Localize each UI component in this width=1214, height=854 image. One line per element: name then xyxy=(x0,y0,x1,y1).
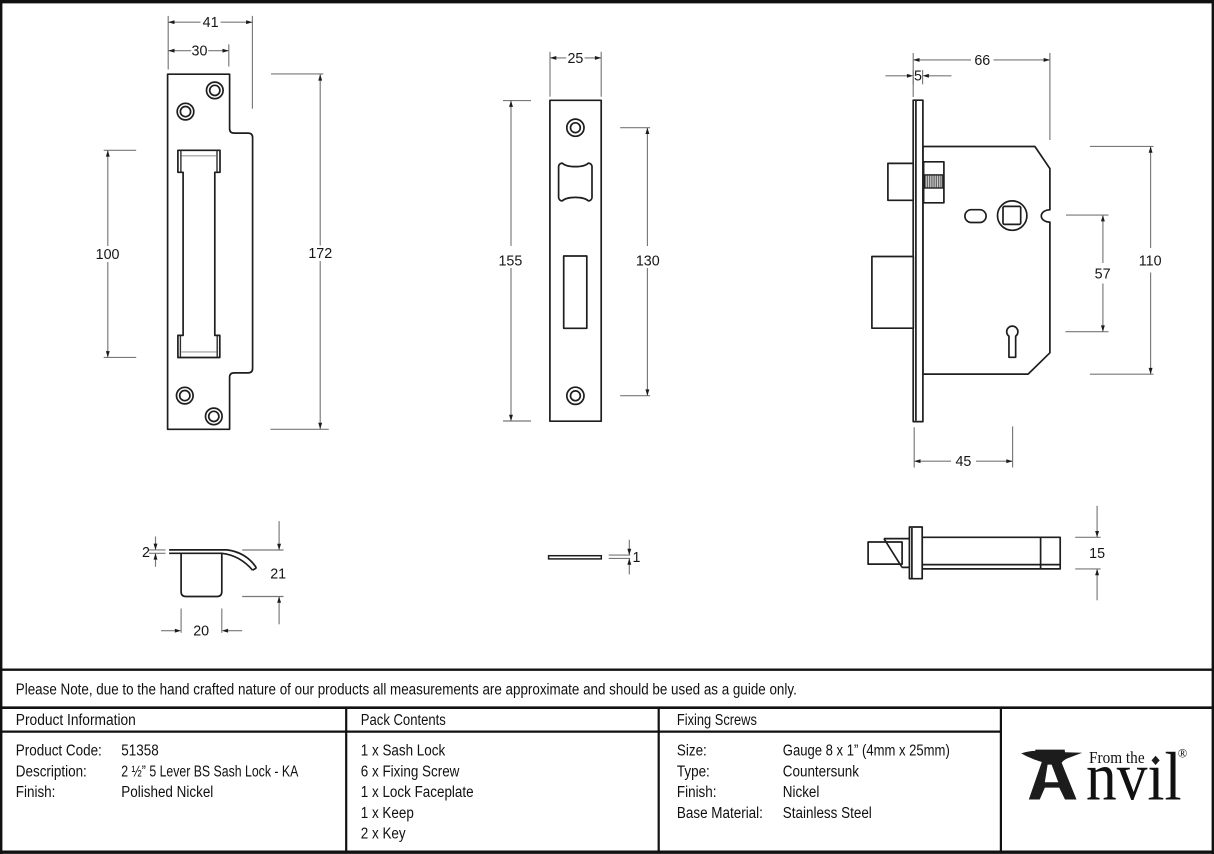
svg-text:2 x Key: 2 x Key xyxy=(361,826,406,843)
svg-text:45: 45 xyxy=(955,454,971,470)
svg-text:30: 30 xyxy=(192,44,208,60)
svg-text:Please Note, due to the hand c: Please Note, due to the hand crafted nat… xyxy=(16,682,797,699)
svg-text:Product Information: Product Information xyxy=(16,712,136,729)
svg-text:15: 15 xyxy=(1089,546,1105,562)
svg-text:Polished Nickel: Polished Nickel xyxy=(121,784,213,801)
svg-text:57: 57 xyxy=(1095,267,1111,283)
svg-text:Stainless Steel: Stainless Steel xyxy=(783,805,872,822)
svg-text:Description:: Description: xyxy=(16,763,87,780)
svg-text:1: 1 xyxy=(633,550,641,566)
svg-text:2: 2 xyxy=(142,545,150,561)
svg-text:1 x Keep: 1 x Keep xyxy=(361,805,414,822)
svg-text:2 ½” 5 Lever BS Sash Lock - KA: 2 ½” 5 Lever BS Sash Lock - KA xyxy=(121,763,299,780)
svg-text:®: ® xyxy=(1178,747,1188,761)
svg-text:66: 66 xyxy=(974,53,990,69)
svg-text:155: 155 xyxy=(498,254,522,270)
svg-text:6 x Fixing Screw: 6 x Fixing Screw xyxy=(361,763,460,780)
svg-text:130: 130 xyxy=(636,254,660,270)
svg-text:172: 172 xyxy=(308,246,332,262)
svg-text:100: 100 xyxy=(96,247,120,263)
svg-text:1 x Sash Lock: 1 x Sash Lock xyxy=(361,743,446,760)
svg-text:Size:: Size: xyxy=(677,743,707,760)
svg-text:Nickel: Nickel xyxy=(783,784,820,801)
svg-text:110: 110 xyxy=(1139,254,1162,270)
svg-text:Base Material:: Base Material: xyxy=(677,805,763,822)
svg-text:Gauge 8 x 1” (4mm x 25mm): Gauge 8 x 1” (4mm x 25mm) xyxy=(783,743,950,760)
svg-text:Product Code:: Product Code: xyxy=(16,743,102,760)
svg-text:Finish:: Finish: xyxy=(677,784,717,801)
svg-text:21: 21 xyxy=(270,566,286,582)
svg-text:51358: 51358 xyxy=(121,743,158,760)
svg-text:5: 5 xyxy=(914,69,922,85)
svg-text:Pack Contents: Pack Contents xyxy=(361,712,446,729)
svg-text:Countersunk: Countersunk xyxy=(783,763,859,780)
svg-text:20: 20 xyxy=(193,624,209,640)
svg-text:Finish:: Finish: xyxy=(16,784,56,801)
svg-text:41: 41 xyxy=(203,15,219,31)
svg-text:1 x Lock Faceplate: 1 x Lock Faceplate xyxy=(361,784,474,801)
svg-text:25: 25 xyxy=(567,51,583,67)
svg-text:nvıl: nvıl xyxy=(1086,738,1182,814)
svg-text:Fixing Screws: Fixing Screws xyxy=(677,712,757,729)
svg-text:Type:: Type: xyxy=(677,763,710,780)
